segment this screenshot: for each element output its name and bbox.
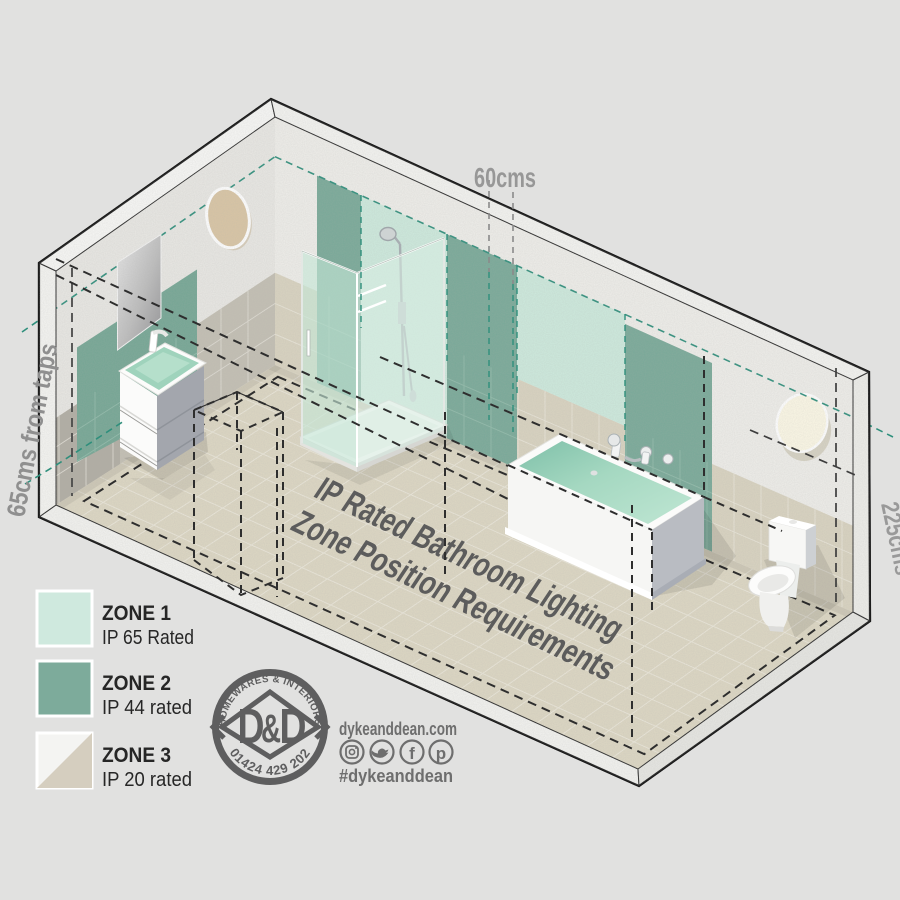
svg-text:IP 65 Rated: IP 65 Rated xyxy=(102,627,194,649)
svg-text:60cms: 60cms xyxy=(474,162,536,193)
svg-text:p: p xyxy=(436,744,446,763)
svg-text:IP 20 rated: IP 20 rated xyxy=(102,769,192,791)
svg-text:IP 44 rated: IP 44 rated xyxy=(102,697,192,719)
svg-text:#dykeanddean: #dykeanddean xyxy=(339,766,453,786)
svg-text:ZONE 3: ZONE 3 xyxy=(102,744,171,767)
svg-text:f: f xyxy=(409,744,415,763)
svg-text:dykeanddean.com: dykeanddean.com xyxy=(339,719,457,739)
svg-text:ZONE 1: ZONE 1 xyxy=(102,602,171,625)
svg-text:D: D xyxy=(280,700,307,754)
svg-text:&: & xyxy=(261,707,281,751)
svg-text:ZONE 2: ZONE 2 xyxy=(102,672,171,695)
